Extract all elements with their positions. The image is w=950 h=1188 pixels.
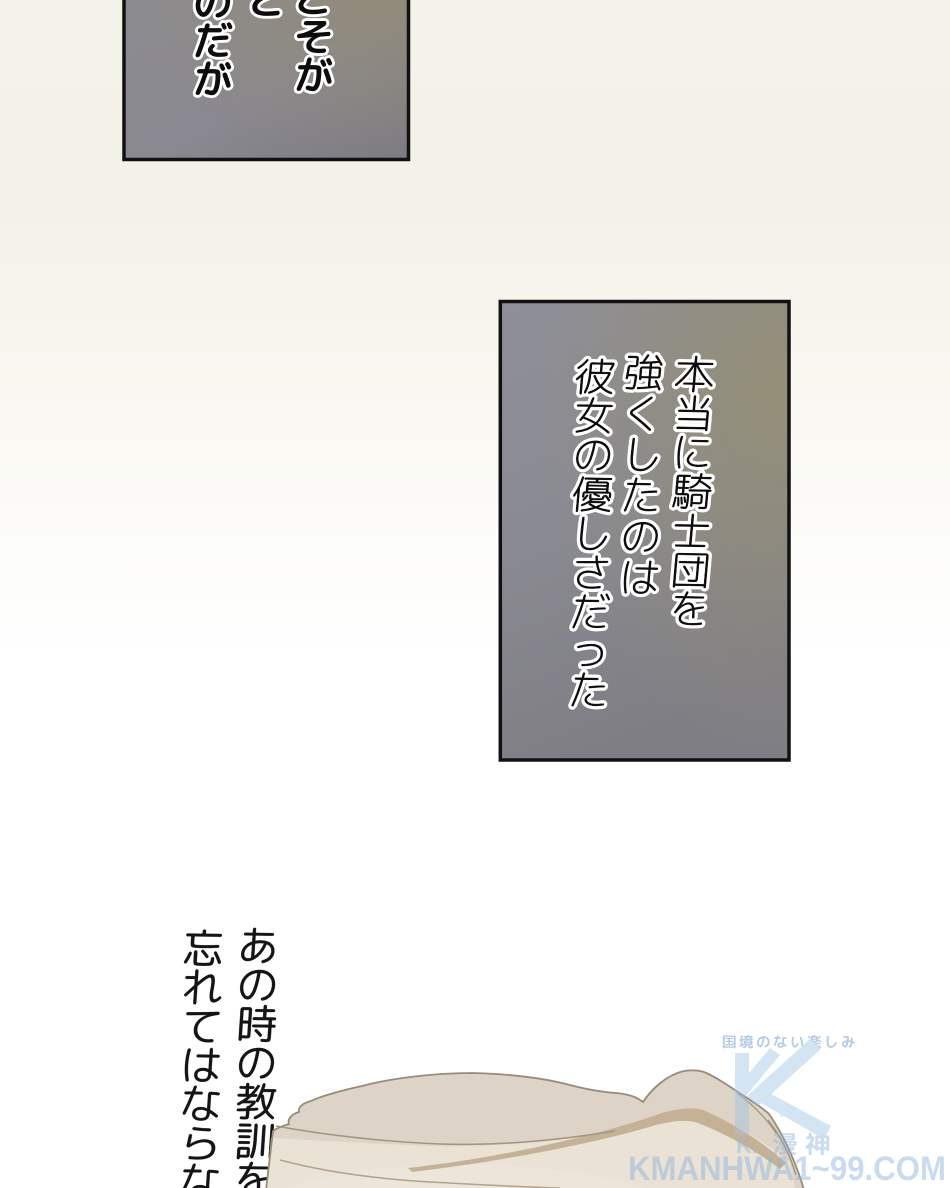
- svg-text:KMANHWA1~99.COM: KMANHWA1~99.COM: [628, 1150, 946, 1188]
